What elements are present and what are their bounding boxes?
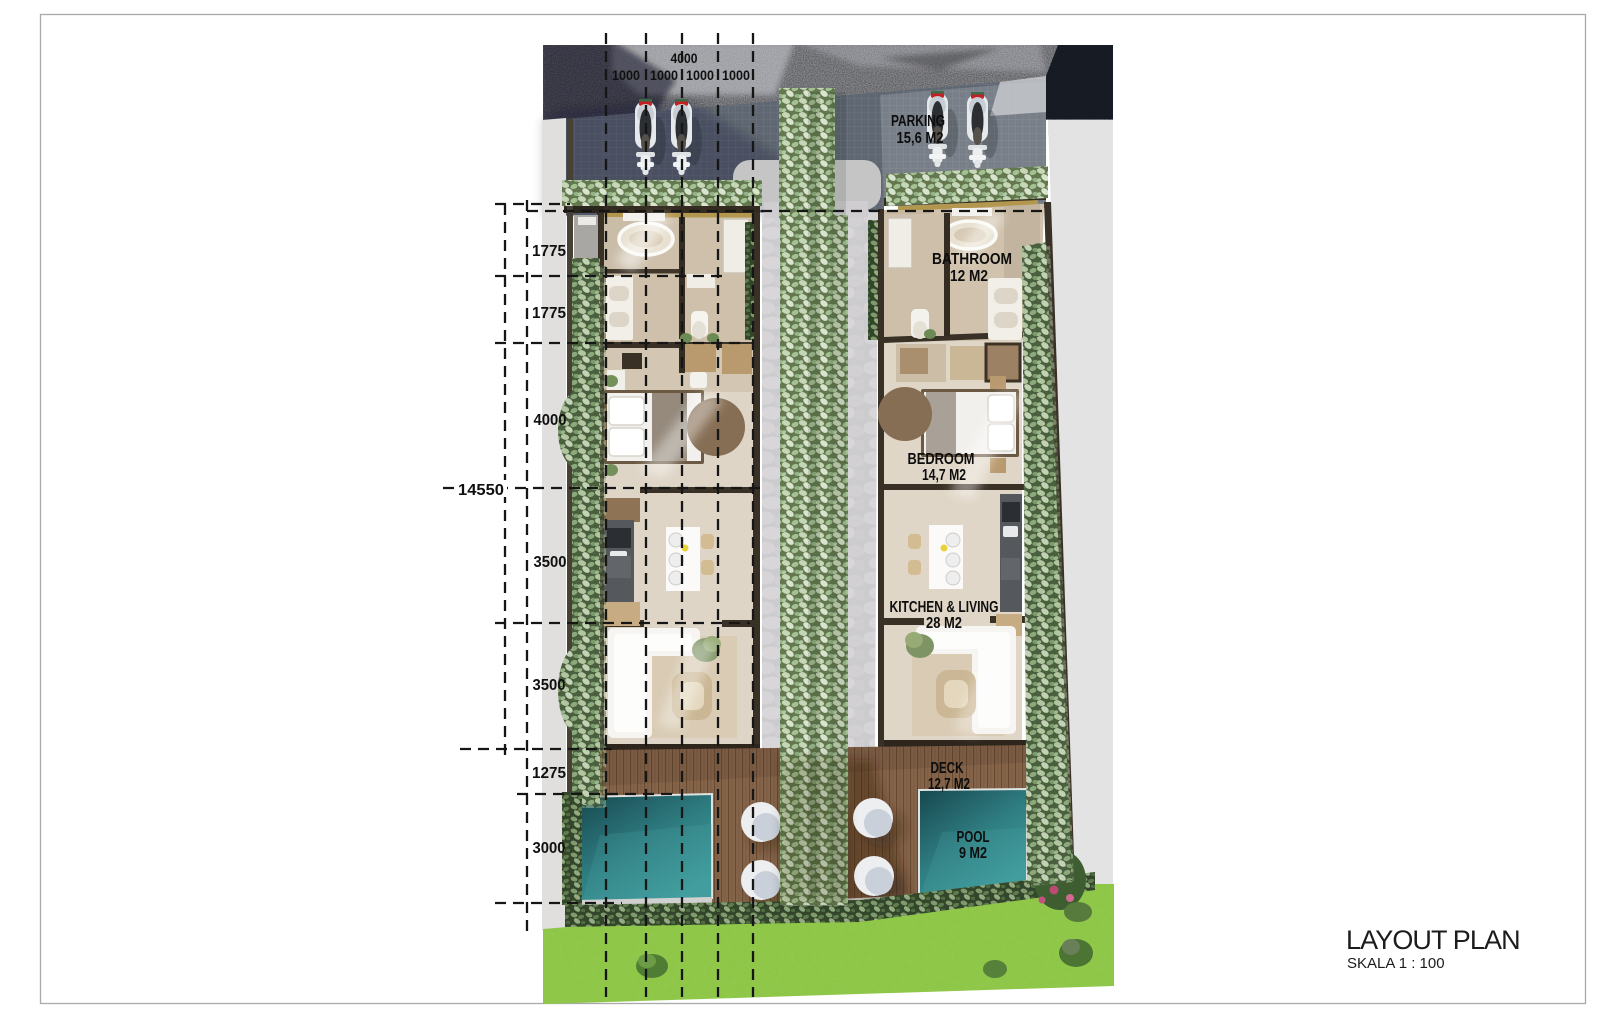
- svg-text:SKALA 1 : 100: SKALA 1 : 100: [1347, 955, 1445, 972]
- svg-text:14550: 14550: [458, 482, 504, 499]
- svg-text:12 M2: 12 M2: [950, 268, 988, 285]
- svg-text:15,6 M2: 15,6 M2: [897, 130, 944, 147]
- svg-text:3500: 3500: [534, 554, 567, 571]
- svg-text:LAYOUT PLAN: LAYOUT PLAN: [1346, 925, 1520, 955]
- svg-text:BEDROOM: BEDROOM: [908, 451, 975, 468]
- svg-text:9 M2: 9 M2: [959, 845, 987, 862]
- svg-text:KITCHEN & LIVING: KITCHEN & LIVING: [890, 599, 999, 616]
- svg-text:1275: 1275: [532, 765, 566, 782]
- svg-text:12,7 M2: 12,7 M2: [928, 776, 970, 793]
- svg-text:1775: 1775: [532, 305, 566, 322]
- svg-text:POOL: POOL: [957, 829, 990, 846]
- svg-text:3500: 3500: [533, 677, 566, 694]
- svg-text:28 M2: 28 M2: [926, 615, 962, 632]
- svg-text:4000: 4000: [534, 412, 567, 429]
- svg-text:DECK: DECK: [931, 760, 965, 777]
- svg-text:PARKING: PARKING: [891, 113, 945, 130]
- svg-text:1000: 1000: [686, 67, 714, 83]
- svg-text:3000: 3000: [533, 840, 566, 857]
- svg-text:1000: 1000: [612, 67, 640, 83]
- svg-text:1000: 1000: [650, 67, 678, 83]
- svg-text:4000: 4000: [671, 50, 698, 66]
- svg-text:1000: 1000: [722, 67, 750, 83]
- svg-text:14,7 M2: 14,7 M2: [922, 467, 966, 484]
- svg-text:BATHROOM: BATHROOM: [932, 251, 1012, 268]
- svg-text:1775: 1775: [532, 243, 566, 260]
